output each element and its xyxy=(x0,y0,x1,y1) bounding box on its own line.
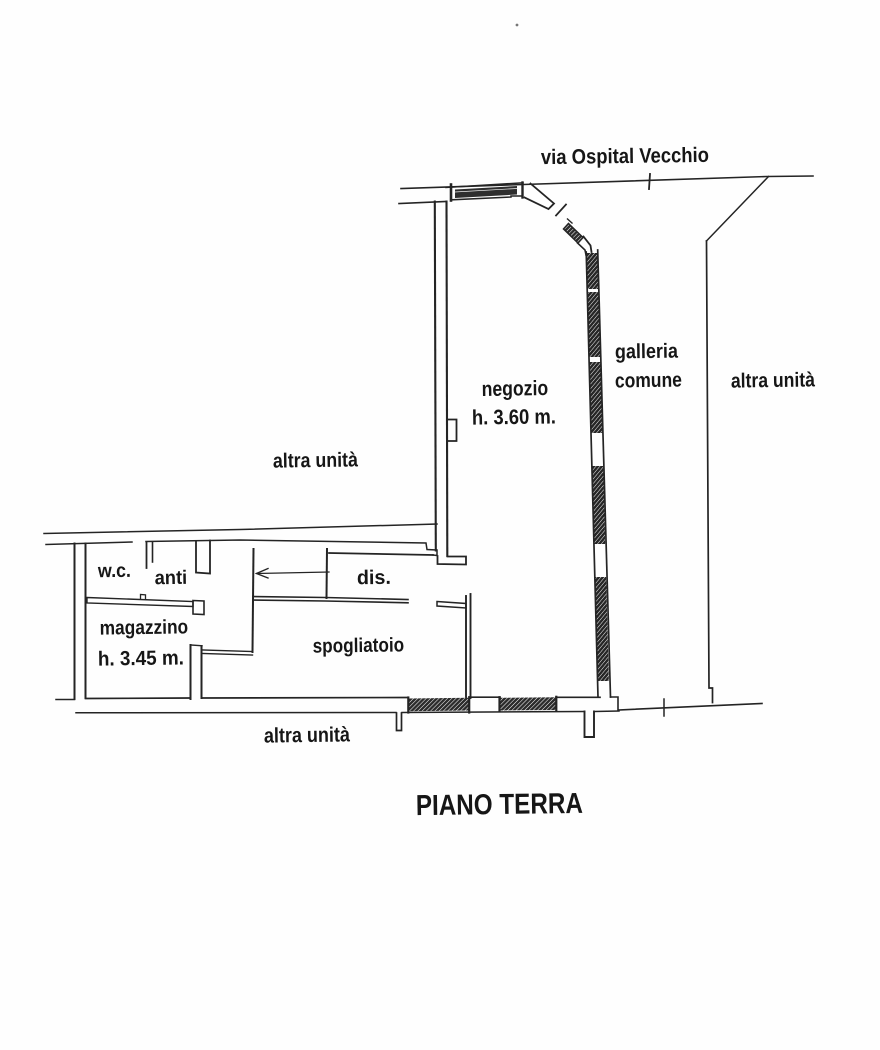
svg-text:PIANO TERRA: PIANO TERRA xyxy=(416,788,583,822)
svg-text:comune: comune xyxy=(615,369,682,393)
svg-text:spogliatoio: spogliatoio xyxy=(313,634,405,657)
svg-text:via Ospital Vecchio: via Ospital Vecchio xyxy=(541,144,709,169)
svg-text:w.c.: w.c. xyxy=(97,560,131,582)
svg-text:altra unità: altra unità xyxy=(731,368,816,392)
svg-text:anti: anti xyxy=(155,567,188,589)
svg-text:negozio: negozio xyxy=(482,377,549,401)
svg-text:galleria: galleria xyxy=(615,340,679,364)
svg-text:altra unità: altra unità xyxy=(273,448,359,472)
svg-text:dis.: dis. xyxy=(357,567,391,589)
svg-text:altra unità: altra unità xyxy=(264,723,351,747)
svg-text:magazzino: magazzino xyxy=(100,616,189,639)
svg-text:h. 3.60 m.: h. 3.60 m. xyxy=(472,405,556,429)
svg-text:h. 3.45 m.: h. 3.45 m. xyxy=(98,646,184,670)
